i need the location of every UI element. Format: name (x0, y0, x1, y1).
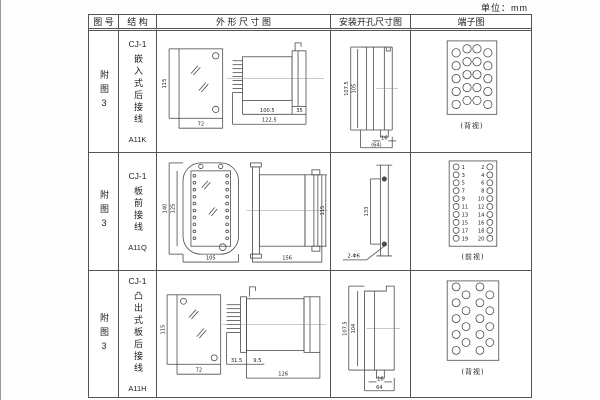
terminal-number: 17 (462, 228, 469, 234)
terminal-number: 7 (462, 189, 465, 195)
terminal-number: 14 (478, 212, 485, 218)
relay-spec-table: 图 号 结 构 外 形 尺 寸 图 安装开孔尺寸图 端子图 附图3 CJ-1 嵌… (88, 14, 532, 398)
dim-gap: 9.5 (253, 358, 261, 364)
structure-type-label: 板前接线 (133, 186, 142, 234)
row2-outline-cell: 140 125 105 156 115 (157, 153, 331, 271)
row1-outline-cell: 115 72 100.5 35 122.5 (157, 31, 331, 153)
dim-front-width: 72 (198, 122, 205, 128)
terminal-number: 11 (462, 205, 469, 211)
dim-front-height-inner: 125 (171, 204, 177, 214)
row3-mounting-cell: 107.5 104 16 64 (331, 271, 411, 397)
dim-v-inner: 104 (351, 324, 357, 334)
terminal-number: 9 (462, 197, 465, 203)
header-fig-no: 图 号 (89, 15, 119, 31)
outline-diagram-a11q: 140 125 105 156 115 (157, 153, 330, 270)
dim-depth-body: 100.5 (260, 108, 275, 114)
terminal-numbers-left: 1 3 5 7 9 11 13 15 17 19 (462, 165, 469, 242)
dim-flange: 35 (296, 108, 303, 114)
terminal-numbers-right: 2 4 6 8 10 12 14 16 18 20 (478, 165, 485, 242)
model-label: CJ-1 (129, 39, 147, 49)
header-structure: 结 构 (119, 15, 157, 31)
row1-structure-cell: CJ-1 嵌入式后接线 A11K (119, 31, 157, 153)
terminal-diagram-a11k: (背视) (411, 31, 531, 152)
dim-depth: 156 (282, 256, 292, 262)
cutout-outline (351, 47, 396, 148)
row2-structure-cell: CJ-1 板前接线 A11Q (119, 153, 157, 271)
dim-span: 64 (376, 385, 383, 391)
row1-terminal-cell: (背视) (411, 31, 531, 153)
terminal-number: 18 (478, 228, 485, 234)
model-label: CJ-1 (129, 171, 147, 181)
terminal-number: 16 (478, 220, 485, 226)
dim-front-height-outer: 140 (163, 204, 169, 214)
dim-front-width: 105 (206, 256, 216, 262)
terminal-number: 8 (481, 189, 484, 195)
row3-structure-cell: CJ-1 凸出式板后接线 A11H (119, 271, 157, 397)
row3-outline-cell: 115 72 31.5 9.5 126 (157, 271, 331, 397)
fig-no-label: 附图3 (99, 70, 108, 113)
terminal-number: 4 (481, 173, 484, 179)
dim-v-inner: 105 (352, 84, 358, 94)
model-label: CJ-1 (129, 276, 147, 286)
row1-fig-no-cell: 附图3 (89, 31, 119, 153)
front-view (167, 295, 221, 374)
header-mounting-dims: 安装开孔尺寸图 (331, 15, 411, 31)
terminal-number: 15 (462, 220, 469, 226)
hole-spec-label: 2-Φ6 (348, 253, 360, 259)
dim-slot: 16 (377, 376, 384, 382)
terminal-block (447, 41, 497, 114)
terminal-number: 20 (478, 236, 485, 242)
dim-hole-span: 133 (364, 207, 370, 217)
front-view (169, 163, 238, 262)
dim-front-height: 115 (161, 325, 167, 335)
dim-slot: 16 (381, 135, 388, 141)
terminal-number: 3 (462, 173, 465, 179)
terminal-view-caption: (背视) (460, 121, 483, 130)
row3-terminal-cell: (背视) (411, 271, 531, 397)
structure-code-label: A11H (128, 384, 146, 393)
dim-front-width: 72 (196, 368, 203, 374)
header-outline-dims: 外 形 尺 寸 图 (157, 15, 331, 31)
outline-diagram-a11h: 115 72 31.5 9.5 126 (157, 271, 330, 397)
cutout-outline (349, 286, 394, 391)
dim-span: (64) (371, 142, 382, 148)
terminal-view-caption: (背视) (461, 367, 484, 376)
row1-mounting-cell: 107.5 105 16 (64) (331, 31, 411, 153)
structure-code-label: A11K (129, 135, 147, 144)
mounting-diagram-a11k: 107.5 105 16 (64) (331, 31, 410, 152)
mounting-hole-bottom (382, 242, 387, 247)
row2-terminal-cell: 1 3 5 7 9 11 13 15 17 19 2 4 6 8 10 12 1… (411, 153, 531, 271)
dim-depth: 126 (278, 372, 288, 378)
outline-diagram-a11k: 115 72 100.5 35 122.5 (157, 31, 330, 152)
front-view (169, 49, 223, 128)
dim-v-outer: 107.5 (344, 81, 350, 96)
dim-depth-total: 122.5 (262, 118, 277, 124)
side-view (227, 287, 320, 378)
dim-side-height: 115 (320, 206, 326, 216)
terminal-number: 6 (481, 181, 484, 187)
dim-front-height: 115 (162, 79, 168, 89)
terminal-block (449, 161, 497, 246)
structure-type-label: 嵌入式后接线 (133, 54, 142, 126)
terminal-number: 12 (478, 205, 485, 211)
header-terminal-diagram: 端子图 (411, 15, 531, 31)
mounting-diagram-a11q: 133 2-Φ6 (331, 153, 410, 270)
row2-mounting-cell: 133 2-Φ6 (331, 153, 411, 271)
mounting-diagram-a11h: 107.5 104 16 64 (331, 271, 410, 397)
terminal-number: 2 (481, 165, 484, 171)
structure-type-label: 凸出式板后接线 (133, 291, 142, 375)
dim-v-outer: 107.5 (342, 321, 348, 336)
terminal-number: 13 (462, 212, 469, 218)
mounting-hole-top (382, 176, 387, 181)
row2-fig-no-cell: 附图3 (89, 153, 119, 271)
terminal-diagram-a11h: (背视) (411, 271, 531, 397)
terminal-number: 19 (462, 236, 469, 242)
terminal-diagram-a11q: 1 3 5 7 9 11 13 15 17 19 2 4 6 8 10 12 1… (411, 153, 531, 270)
terminal-number: 10 (478, 197, 485, 203)
dim-pins: 31.5 (231, 358, 242, 364)
terminal-view-caption: (前视) (461, 252, 484, 261)
terminal-number: 1 (462, 165, 465, 171)
structure-code-label: A11Q (128, 243, 147, 252)
side-view (250, 163, 326, 262)
fig-no-label: 附图3 (99, 313, 108, 356)
fig-no-label: 附图3 (99, 190, 108, 233)
terminal-number: 5 (462, 181, 465, 187)
row3-fig-no-cell: 附图3 (89, 271, 119, 397)
scan-edge-artifact (0, 0, 1, 400)
terminal-block (447, 281, 499, 360)
